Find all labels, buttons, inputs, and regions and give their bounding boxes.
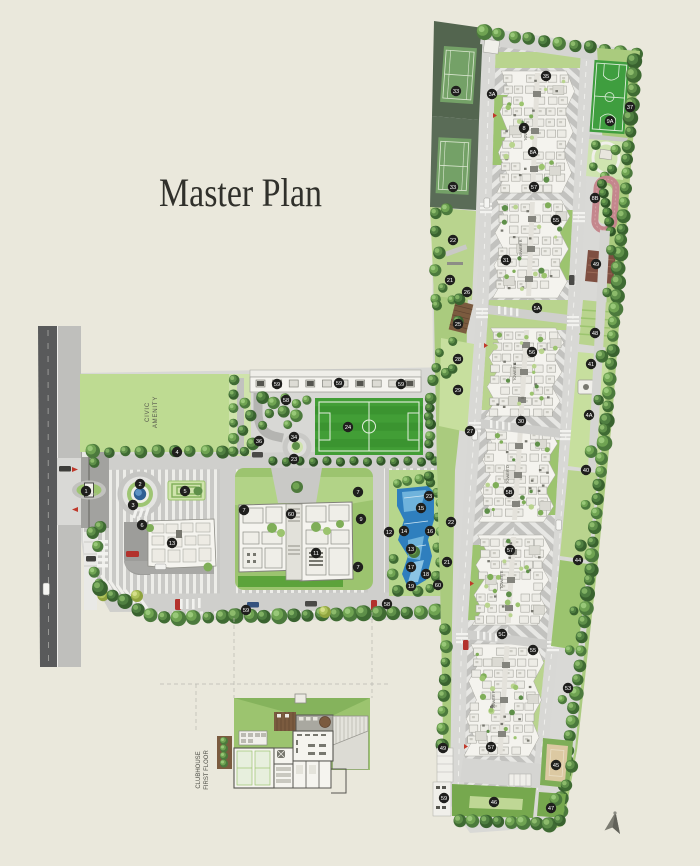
svg-text:57: 57: [507, 548, 513, 554]
svg-text:18: 18: [423, 572, 429, 578]
svg-text:CLUBHOUSE: CLUBHOUSE: [196, 751, 202, 788]
svg-text:4A: 4A: [586, 413, 593, 419]
svg-text:CIVIC: CIVIC: [145, 402, 151, 422]
svg-text:59: 59: [336, 381, 342, 387]
svg-text:26: 26: [464, 290, 470, 296]
svg-text:46: 46: [491, 800, 497, 806]
svg-text:TOWER B: TOWER B: [518, 239, 523, 258]
svg-text:AMENITY: AMENITY: [153, 396, 159, 428]
svg-text:8A: 8A: [530, 150, 537, 156]
svg-text:7: 7: [242, 508, 245, 514]
svg-text:59: 59: [441, 796, 447, 802]
svg-text:44: 44: [575, 558, 581, 564]
svg-text:22: 22: [450, 238, 456, 244]
svg-text:41: 41: [588, 362, 594, 368]
svg-text:2: 2: [138, 482, 141, 488]
svg-text:5: 5: [183, 489, 186, 495]
svg-text:FIRST FLOOR: FIRST FLOOR: [204, 750, 210, 790]
svg-text:13: 13: [169, 541, 175, 547]
svg-text:48: 48: [592, 331, 598, 337]
svg-text:5A: 5A: [534, 306, 541, 312]
svg-text:14: 14: [401, 529, 407, 535]
svg-text:36: 36: [256, 439, 262, 445]
svg-text:9: 9: [359, 517, 362, 523]
svg-text:34: 34: [291, 435, 297, 441]
svg-text:47: 47: [548, 806, 554, 812]
svg-text:40: 40: [583, 468, 589, 474]
svg-text:22: 22: [448, 520, 454, 526]
svg-text:23: 23: [426, 494, 432, 500]
svg-text:25: 25: [455, 322, 461, 328]
svg-text:5B: 5B: [506, 490, 513, 496]
svg-text:59: 59: [274, 382, 280, 388]
svg-text:24: 24: [345, 425, 351, 431]
svg-text:33: 33: [450, 185, 456, 191]
svg-text:49: 49: [593, 262, 599, 268]
svg-text:30: 30: [518, 419, 524, 425]
svg-text:Master Plan: Master Plan: [159, 170, 322, 215]
svg-text:TOWER E: TOWER E: [499, 570, 504, 589]
svg-text:58: 58: [384, 602, 390, 608]
svg-text:56: 56: [529, 350, 535, 356]
svg-text:53: 53: [565, 686, 571, 692]
svg-text:60: 60: [435, 583, 441, 589]
svg-text:31: 31: [503, 258, 509, 264]
svg-text:60: 60: [288, 512, 294, 518]
svg-text:45: 45: [553, 763, 559, 769]
svg-text:3A: 3A: [489, 92, 496, 98]
svg-text:6: 6: [140, 523, 143, 529]
svg-text:15: 15: [418, 506, 424, 512]
svg-text:28: 28: [455, 357, 461, 363]
svg-text:8B: 8B: [592, 196, 599, 202]
svg-text:8: 8: [522, 126, 525, 132]
svg-text:55: 55: [553, 218, 559, 224]
svg-text:59: 59: [398, 382, 404, 388]
svg-text:7: 7: [356, 565, 359, 571]
svg-text:17: 17: [408, 565, 414, 571]
svg-text:1: 1: [84, 489, 87, 495]
svg-text:5C: 5C: [498, 632, 505, 638]
svg-text:TOWER D: TOWER D: [505, 465, 510, 484]
svg-text:49: 49: [440, 746, 446, 752]
svg-text:37: 37: [627, 105, 633, 111]
svg-text:7: 7: [356, 490, 359, 496]
svg-text:TOWER F: TOWER F: [491, 690, 496, 709]
svg-text:23: 23: [291, 457, 297, 463]
svg-text:9A: 9A: [607, 119, 614, 125]
svg-text:35: 35: [543, 74, 549, 80]
svg-text:12: 12: [386, 530, 392, 536]
svg-text:4: 4: [175, 450, 178, 456]
svg-text:19: 19: [408, 584, 414, 590]
svg-text:21: 21: [447, 278, 453, 284]
svg-text:27: 27: [467, 429, 473, 435]
svg-text:16: 16: [427, 529, 433, 535]
svg-text:57: 57: [531, 185, 537, 191]
svg-text:11: 11: [313, 551, 319, 557]
svg-text:58: 58: [283, 398, 289, 404]
svg-text:59: 59: [243, 608, 249, 614]
svg-text:57: 57: [488, 745, 494, 751]
svg-text:29: 29: [455, 388, 461, 394]
svg-text:55: 55: [530, 648, 536, 654]
svg-text:21: 21: [444, 560, 450, 566]
svg-text:3: 3: [131, 503, 134, 509]
svg-text:33: 33: [453, 89, 459, 95]
svg-text:TOWER C: TOWER C: [512, 362, 517, 381]
svg-text:13: 13: [408, 547, 414, 553]
